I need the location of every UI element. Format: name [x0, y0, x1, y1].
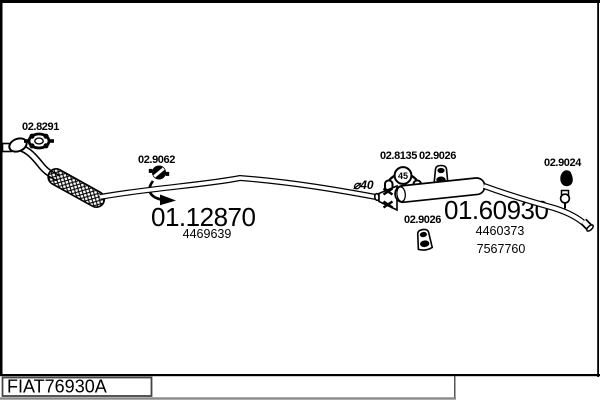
exhaust-diagram-canvas: FIAT76930A 02.8291 02.9062 01.12870: [0, 0, 600, 400]
clamp-mid-label: 02.8135: [380, 150, 417, 162]
flange-gasket-icon: [24, 134, 54, 149]
frame-top-border: [0, 0, 600, 3]
rear-hanger-icon: [560, 170, 573, 208]
title-strip-bottom-line: [0, 397, 456, 399]
hanger-mid-label: 02.9062: [138, 154, 175, 166]
mount-upper-label: 02.9026: [419, 150, 456, 162]
muffler-inlet-cone: [379, 186, 397, 210]
clamp-front-label: 02.8291: [22, 121, 59, 133]
front-pipe-oem: 4469639: [183, 227, 232, 241]
rubber-mount-icon-lower: [416, 229, 433, 251]
hanger-rear-label: 02.9024: [544, 157, 582, 169]
frame-left-border: [0, 0, 3, 376]
frame-right-border: [597, 0, 599, 377]
pipe-diameter-label: ⌀40: [353, 178, 374, 192]
title-strip-divider: [454, 376, 456, 398]
middle-pipe: [100, 178, 376, 197]
mount-lower-label: 02.9026: [404, 214, 441, 226]
drawing-code: FIAT76930A: [7, 377, 107, 397]
flex-pipe-section: [45, 166, 107, 210]
rear-muffler-oem-1: 4460373: [476, 224, 525, 238]
tail-pipe-tip: [584, 222, 595, 233]
exhaust-diagram-page: FIAT76930A 02.8291 02.9062 01.12870: [0, 0, 600, 400]
clamp-size-label: 45: [398, 171, 408, 181]
ring-hanger-icon: [149, 166, 169, 180]
rear-muffler-oem-2: 7567760: [477, 242, 526, 256]
